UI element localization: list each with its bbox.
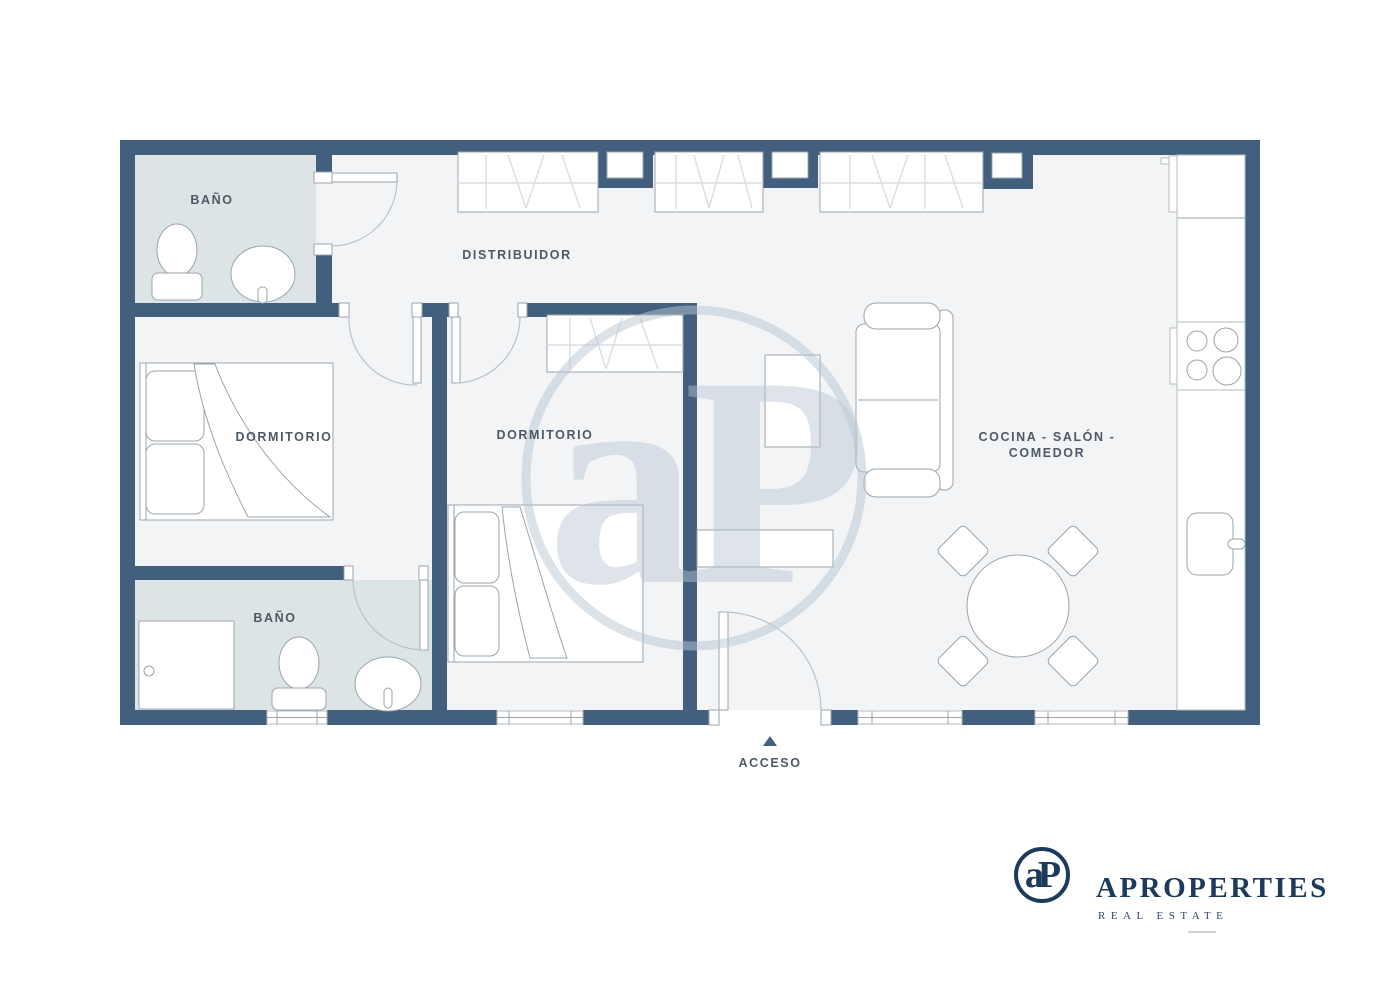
wardrobe bbox=[820, 152, 983, 212]
pillow bbox=[146, 444, 204, 514]
cabinet-door bbox=[1169, 156, 1177, 212]
floorplan-page: aP BAÑO DISTRIBUIDOR DORMITORIO DORMITOR… bbox=[0, 0, 1400, 989]
aproperties-wordmark: APROPERTIES bbox=[1096, 872, 1329, 905]
wardrobe bbox=[458, 152, 598, 212]
logo-divider bbox=[1188, 931, 1216, 933]
room-label-cocina-salon-comedor: COCINA - SALÓN - COMEDOR bbox=[979, 429, 1116, 461]
stove bbox=[1170, 322, 1245, 390]
pillow bbox=[146, 371, 204, 441]
window bbox=[858, 711, 962, 724]
watermark-monogram: aP bbox=[547, 315, 861, 647]
cabinet-handle bbox=[1161, 158, 1169, 164]
kitchen-counter bbox=[1177, 155, 1245, 710]
entrance-arrow-icon bbox=[763, 736, 777, 746]
sink bbox=[355, 657, 421, 711]
window bbox=[267, 711, 327, 724]
room-label-bano-bottom: BAÑO bbox=[253, 610, 296, 626]
pillow bbox=[455, 586, 499, 656]
aproperties-tagline: REAL ESTATE bbox=[1098, 910, 1228, 922]
pillow bbox=[455, 512, 499, 583]
sofa bbox=[856, 303, 953, 497]
faucet bbox=[1228, 539, 1245, 549]
wardrobe bbox=[655, 152, 763, 212]
sink bbox=[231, 246, 295, 303]
room-label-distribuidor: DISTRIBUIDOR bbox=[462, 247, 571, 263]
room-label-dormitorio-center: DORMITORIO bbox=[496, 427, 593, 443]
room-label-bano-top: BAÑO bbox=[190, 192, 233, 208]
window bbox=[1035, 711, 1128, 724]
window bbox=[497, 711, 583, 724]
floor-plan-drawing: aP bbox=[0, 0, 1400, 989]
shower bbox=[139, 621, 234, 709]
room-label-dormitorio-left: DORMITORIO bbox=[235, 429, 332, 445]
entrance-label: ACCESO bbox=[738, 755, 801, 771]
dining-table bbox=[967, 555, 1069, 657]
aproperties-monogram-icon: aP bbox=[1014, 847, 1070, 903]
watermark: aP bbox=[526, 310, 862, 647]
